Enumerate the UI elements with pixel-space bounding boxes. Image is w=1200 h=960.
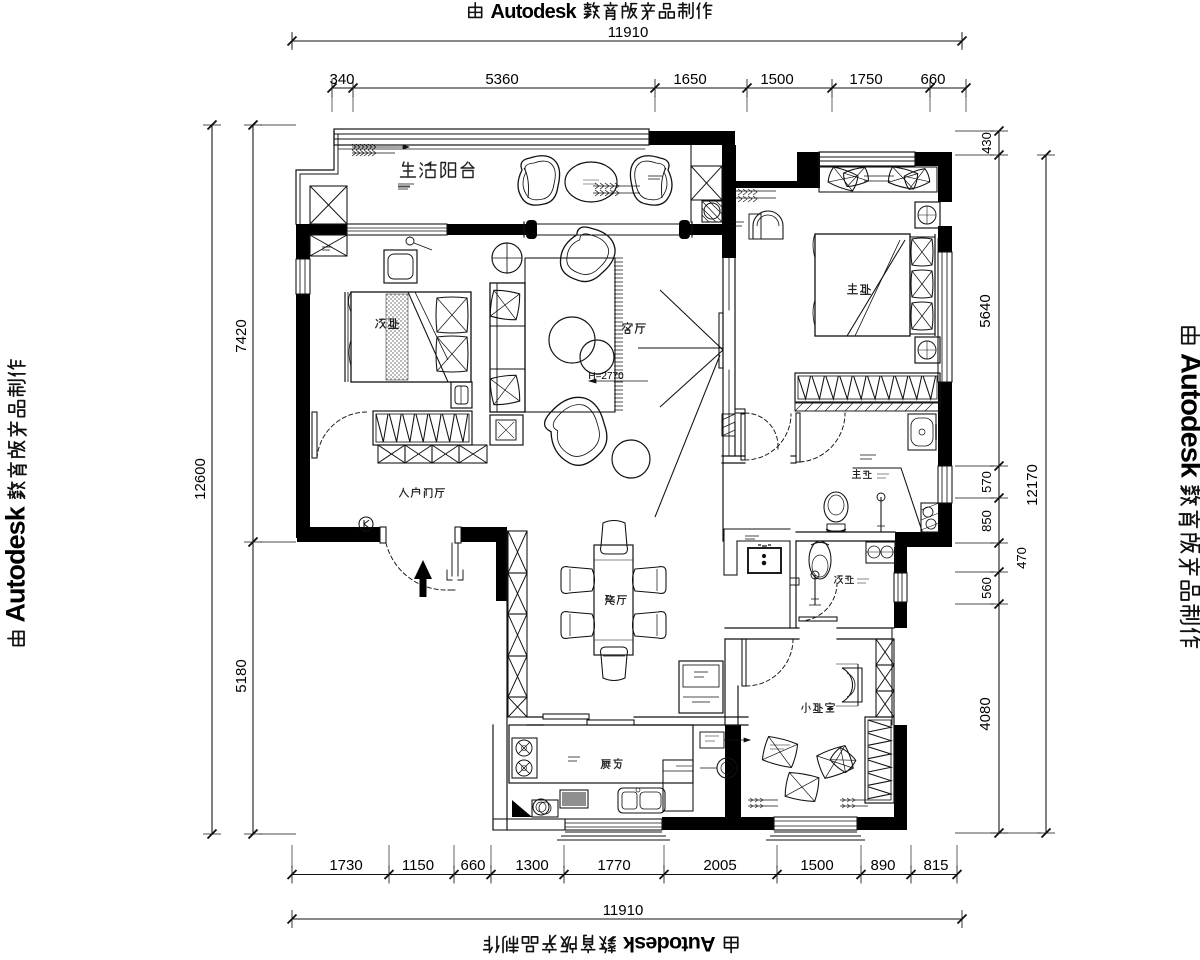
svg-text:430: 430 bbox=[979, 132, 994, 154]
svg-text:11910: 11910 bbox=[608, 24, 649, 41]
svg-text:1150: 1150 bbox=[402, 857, 434, 874]
svg-text:11910: 11910 bbox=[603, 902, 644, 919]
svg-text:12600: 12600 bbox=[192, 458, 209, 500]
svg-text:Autodesk: Autodesk bbox=[623, 932, 716, 956]
svg-text:2005: 2005 bbox=[703, 857, 736, 874]
svg-text:5360: 5360 bbox=[485, 71, 518, 88]
svg-text:815: 815 bbox=[923, 857, 948, 874]
svg-text:7420: 7420 bbox=[233, 319, 250, 352]
svg-text:1750: 1750 bbox=[849, 71, 882, 88]
svg-text:Autodesk: Autodesk bbox=[490, 1, 577, 23]
svg-text:1500: 1500 bbox=[800, 857, 833, 874]
svg-text:660: 660 bbox=[920, 71, 945, 88]
svg-text:1730: 1730 bbox=[329, 857, 362, 874]
svg-text:5180: 5180 bbox=[233, 659, 250, 692]
svg-text:1300: 1300 bbox=[515, 857, 548, 874]
svg-text:1650: 1650 bbox=[673, 71, 706, 88]
svg-text:850: 850 bbox=[979, 510, 994, 532]
svg-text:660: 660 bbox=[460, 857, 485, 874]
svg-text:4080: 4080 bbox=[977, 697, 994, 730]
svg-text:560: 560 bbox=[979, 577, 994, 599]
svg-text:470: 470 bbox=[1014, 547, 1029, 569]
svg-text:Autodesk: Autodesk bbox=[1174, 353, 1200, 479]
svg-text:340: 340 bbox=[329, 71, 354, 88]
svg-text:Autodesk: Autodesk bbox=[0, 505, 30, 622]
svg-text:5640: 5640 bbox=[977, 294, 994, 327]
svg-text:1500: 1500 bbox=[760, 71, 793, 88]
svg-text:570: 570 bbox=[979, 471, 994, 493]
svg-text:1770: 1770 bbox=[597, 857, 630, 874]
svg-text:890: 890 bbox=[870, 857, 895, 874]
svg-text:12170: 12170 bbox=[1024, 464, 1041, 506]
